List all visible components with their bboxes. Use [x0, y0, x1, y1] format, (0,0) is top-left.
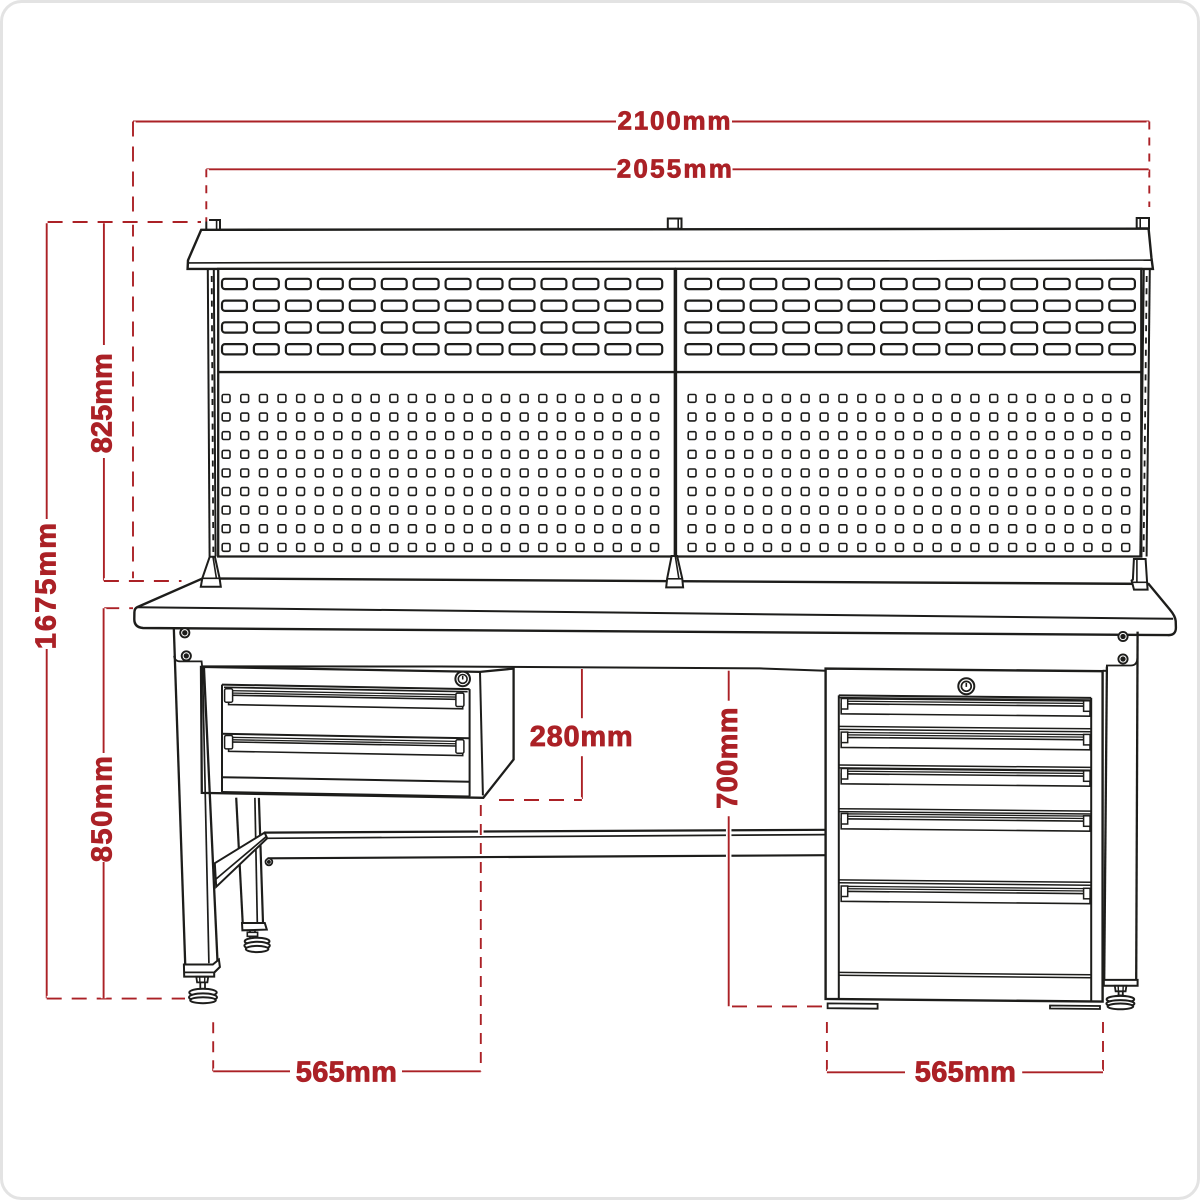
svg-text:700mm: 700mm	[712, 707, 744, 809]
svg-text:825mm: 825mm	[86, 353, 118, 453]
svg-text:2100mm: 2100mm	[617, 105, 732, 135]
svg-text:1675mm: 1675mm	[31, 521, 63, 649]
svg-text:850mm: 850mm	[86, 755, 118, 863]
svg-text:565mm: 565mm	[296, 1056, 397, 1088]
svg-text:565mm: 565mm	[915, 1057, 1016, 1089]
svg-text:2055mm: 2055mm	[617, 153, 734, 183]
svg-text:280mm: 280mm	[530, 721, 634, 753]
